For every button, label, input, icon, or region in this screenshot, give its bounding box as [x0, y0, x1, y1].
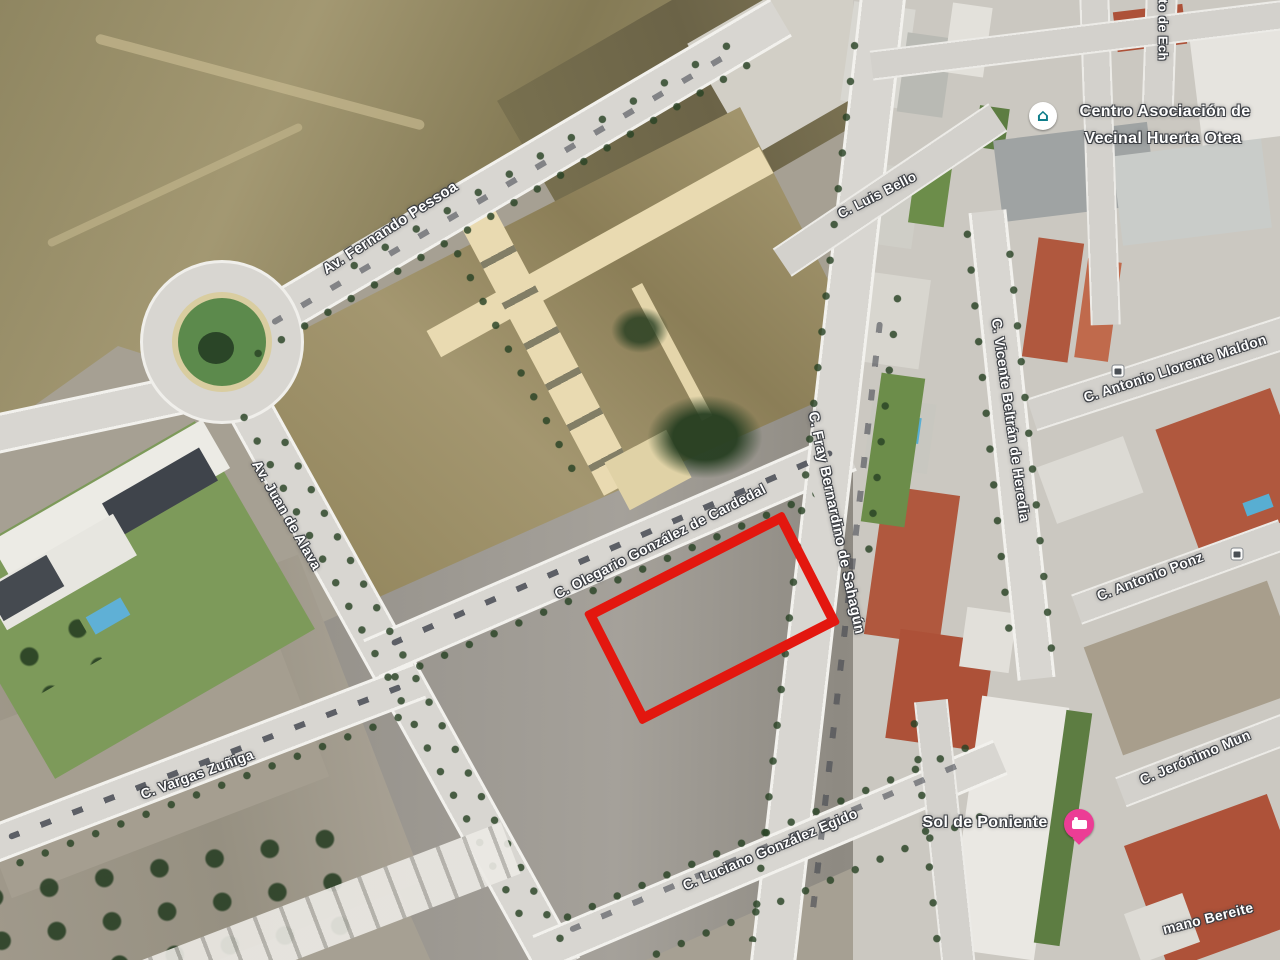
- poi-label-centro-asociacion-line1[interactable]: Centro Asociación de: [1080, 103, 1251, 121]
- satellite-map[interactable]: ⌂ Av. Fernando Pessoa C. Luis Bello Cent…: [0, 0, 1280, 960]
- street-label-fragment-top-right: to de Ech: [1156, 0, 1171, 61]
- bus-stop-icon[interactable]: [1231, 548, 1244, 561]
- hotel-bed-pin-icon[interactable]: [1064, 809, 1094, 839]
- roundabout-tree: [198, 332, 234, 364]
- bed-glyph: [1072, 820, 1087, 829]
- tree-cluster: [600, 298, 680, 362]
- building-block: [1112, 138, 1272, 246]
- community-center-icon[interactable]: ⌂: [1029, 102, 1057, 130]
- community-center-glyph: ⌂: [1037, 108, 1049, 125]
- poi-label-sol-de-poniente[interactable]: Sol de Poniente: [922, 814, 1047, 832]
- poi-label-centro-asociacion-line2[interactable]: Vecinal Huerta Otea: [1085, 130, 1242, 148]
